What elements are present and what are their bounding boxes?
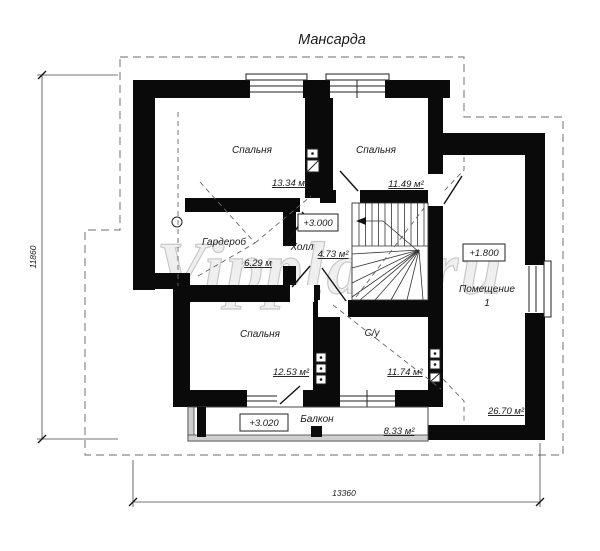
dimension-width: 13360 [332,488,356,498]
door-balcony [277,386,303,407]
room-label-bedroom-top-right: Спальня [356,145,397,156]
window-top-right [326,74,389,98]
room-area-bedroom-top-right: 11.49 м² [388,179,424,190]
room-area-bedroom-bottom: 12.53 м² [273,367,310,378]
elevation-hall: +3.000 [303,218,333,229]
elevation-room1: +1.800 [469,248,499,259]
door-bedroom2 [336,171,360,203]
stairs [352,203,428,300]
room-area-bedroom-top-left: 13.34 м² [272,178,309,189]
room-label-room1: Помещение [459,284,515,295]
room-label-bedroom-top-left: Спальня [232,145,273,156]
room-label-bedroom-bottom: Спальня [240,329,281,340]
elevation-balcony: +3.020 [249,418,279,429]
floor-plan-drawing: Vipplan.ru [0,0,600,551]
balcony-post [311,426,322,437]
room-area-hall: 4.73 м² [318,249,350,260]
plan-title: Мансарда [298,32,366,48]
room-area-bathroom: 11.74 м² [387,367,423,378]
room-number-room1: 1 [484,298,490,309]
column-symbol [172,217,182,227]
room-label-balcony: Балкон [300,414,334,425]
room-label-bathroom: С/у [365,328,381,339]
room-area-wardrobe: 6.29 м [244,258,272,269]
window-room1-right [523,261,551,317]
dimension-height: 11860 [28,245,38,268]
room-label-hall: Холл [289,242,313,253]
room-area-balcony: 8.33 м² [384,426,416,437]
room-area-room1: 26.70 м² [487,406,525,417]
floor-plan-canvas: Vipplan.ru [0,0,600,551]
room-label-wardrobe: Гардероб [202,236,246,248]
balcony-left-post [197,407,206,437]
window-top-left [246,74,307,98]
